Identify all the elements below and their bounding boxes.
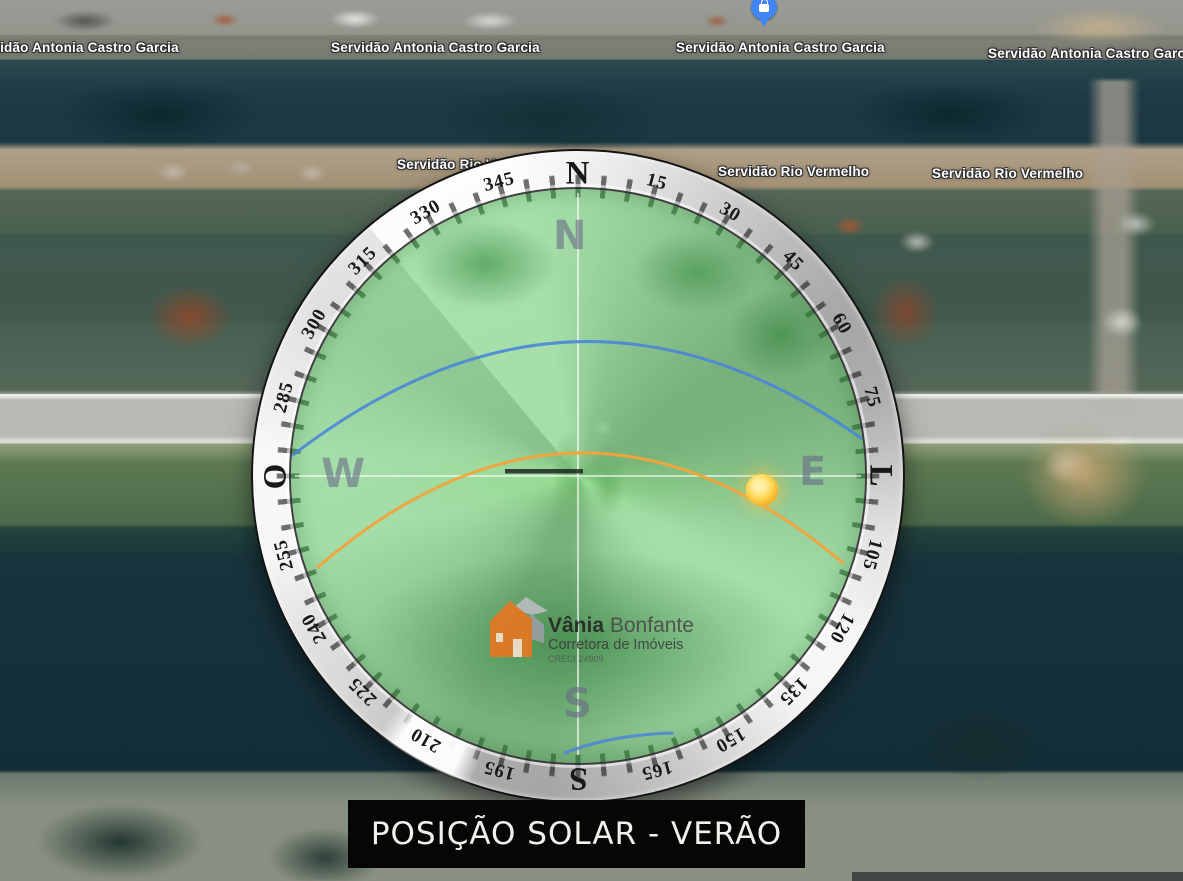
brand-name-light: Bonfante bbox=[610, 614, 694, 637]
street-label: Servidão Rio Vermelho bbox=[932, 166, 1083, 181]
street-label: Servidão Antonia Castro Garcia bbox=[988, 46, 1183, 61]
brand-tagline: Corretora de Imóveis bbox=[548, 638, 694, 653]
compass-rose: N 15 30 45 60 75 L 105 120 135 150 165 S… bbox=[251, 149, 905, 803]
sun-icon bbox=[746, 474, 778, 506]
brand-watermark: Vânia Bonfante Corretora de Imóveis CREC… bbox=[486, 593, 696, 673]
map-attribution-bar bbox=[852, 872, 1183, 881]
caption-banner: POSIÇÃO SOLAR - VERÃO bbox=[348, 800, 805, 868]
map-feature-shadow bbox=[505, 469, 583, 474]
ring-label-n: N bbox=[566, 156, 591, 193]
house-icon bbox=[486, 593, 548, 667]
street-label: Servidão Antonia Castro Garcia bbox=[331, 40, 540, 55]
place-pin[interactable] bbox=[751, 0, 777, 28]
caption-text: POSIÇÃO SOLAR - VERÃO bbox=[371, 816, 782, 852]
brand-text: Vânia Bonfante Corretora de Imóveis CREC… bbox=[548, 593, 694, 673]
compass-dial: N E S W Vânia bbox=[291, 189, 865, 763]
ring-label-s: S bbox=[568, 760, 587, 797]
brand-name-bold: Vânia bbox=[548, 614, 604, 637]
solar-position-map: Servidão Antonia Castro Garcia Servidão … bbox=[0, 0, 1183, 881]
sun-path-arcs bbox=[291, 189, 865, 763]
inner-letter-east: E bbox=[799, 449, 826, 495]
place-pin-tail bbox=[759, 18, 769, 27]
inner-letter-west: W bbox=[321, 451, 365, 497]
brand-license: CRECI 24909 bbox=[548, 655, 694, 664]
inner-letter-north: N bbox=[553, 213, 586, 259]
inner-letter-south: S bbox=[563, 681, 592, 727]
winter-sun-path-lower bbox=[565, 733, 672, 753]
winter-sun-path bbox=[293, 342, 861, 455]
street-label: Servidão Antonia Castro Garcia bbox=[0, 40, 179, 55]
shopping-bag-icon bbox=[759, 4, 769, 12]
ring-label-o: O bbox=[258, 463, 295, 490]
ring-label-l: L bbox=[862, 464, 899, 487]
street-label: Servidão Antonia Castro Garcia bbox=[676, 40, 885, 55]
brand-name: Vânia Bonfante bbox=[548, 615, 694, 637]
